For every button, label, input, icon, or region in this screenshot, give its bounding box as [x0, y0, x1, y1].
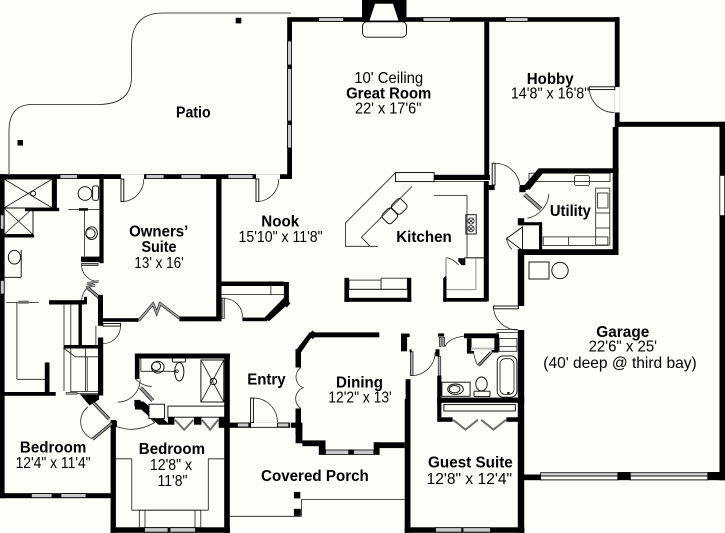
svg-text:Kitchen: Kitchen: [396, 229, 452, 246]
svg-text:Entry: Entry: [247, 371, 285, 388]
svg-text:12'8" x: 12'8" x: [150, 457, 192, 474]
svg-text:Guest Suite: Guest Suite: [428, 455, 513, 472]
svg-text:22'6" x 25': 22'6" x 25': [589, 338, 657, 355]
svg-text:12'2" x 13': 12'2" x 13': [328, 390, 391, 407]
svg-text:Utility: Utility: [550, 203, 591, 220]
svg-text:13' x 16': 13' x 16': [134, 255, 183, 272]
svg-text:Covered Porch: Covered Porch: [261, 468, 369, 485]
svg-text:Bedroom: Bedroom: [20, 440, 86, 457]
svg-text:10' Ceiling: 10' Ceiling: [354, 70, 423, 87]
svg-text:(40' deep @ third bay): (40' deep @ third bay): [543, 355, 696, 372]
svg-text:12'4" x 11'4": 12'4" x 11'4": [16, 455, 91, 472]
svg-text:Patio: Patio: [176, 105, 211, 122]
svg-text:12'8" x 12'4": 12'8" x 12'4": [427, 471, 513, 488]
svg-text:Suite: Suite: [141, 239, 176, 256]
svg-text:15'10" x 11'8": 15'10" x 11'8": [239, 229, 323, 246]
svg-text:22' x 17'6": 22' x 17'6": [355, 101, 421, 118]
svg-text:14'8" x 16'8": 14'8" x 16'8": [511, 86, 590, 103]
svg-text:11'8": 11'8": [158, 473, 188, 490]
svg-text:Bedroom: Bedroom: [139, 441, 205, 458]
